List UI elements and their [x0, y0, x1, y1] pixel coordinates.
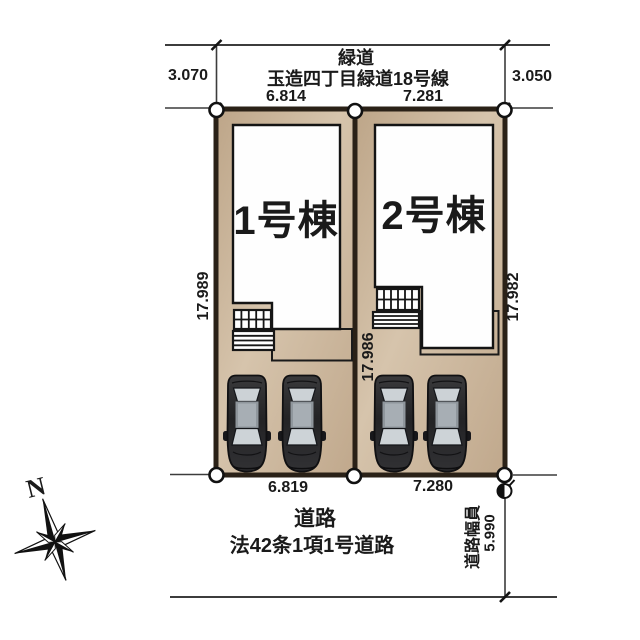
- car-icon: [278, 376, 326, 472]
- site-plan: 緑道 玉造四丁目緑道18号線 3.070 3.050 6.814 7.281 1…: [0, 0, 640, 640]
- compass-rose-icon: [2, 487, 106, 592]
- lot-1-frontage-top-dim: 6.814: [266, 89, 306, 105]
- road-width-caption: 道路幅員: [466, 505, 482, 569]
- road-legal-class: 法42条1項1号道路: [230, 536, 395, 556]
- green-road-route-name: 玉造四丁目緑道18号線: [267, 70, 449, 88]
- car-icon: [223, 376, 271, 472]
- lot-1-frontage-bottom-dim: 6.819: [268, 480, 308, 496]
- lot-2-side-depth-dim: 17.982: [506, 273, 522, 322]
- divider-depth-dim: 17.986: [361, 333, 377, 382]
- lot-2-frontage-bottom-dim: 7.280: [413, 479, 453, 495]
- lot-1-entrance-steps: [233, 331, 274, 350]
- green-road-width-right: 3.050: [512, 69, 552, 85]
- car-icon: [423, 376, 471, 472]
- green-road-name: 緑道: [338, 49, 374, 67]
- lot-1-side-depth-dim: 17.989: [196, 272, 212, 321]
- building-1-label: 1号棟: [233, 201, 338, 241]
- green-road-width-left: 3.070: [168, 68, 208, 84]
- lot-1-entrance-hatch: [234, 310, 271, 329]
- lot-2-entrance-steps: [373, 312, 419, 328]
- car-icon: [370, 376, 418, 472]
- building-2-label: 2号棟: [381, 196, 486, 236]
- road-width-value: 5.990: [483, 514, 498, 552]
- lot-2-entrance-hatch: [377, 289, 419, 310]
- lot-2-frontage-top-dim: 7.281: [403, 89, 443, 105]
- road-name: 道路: [294, 509, 336, 530]
